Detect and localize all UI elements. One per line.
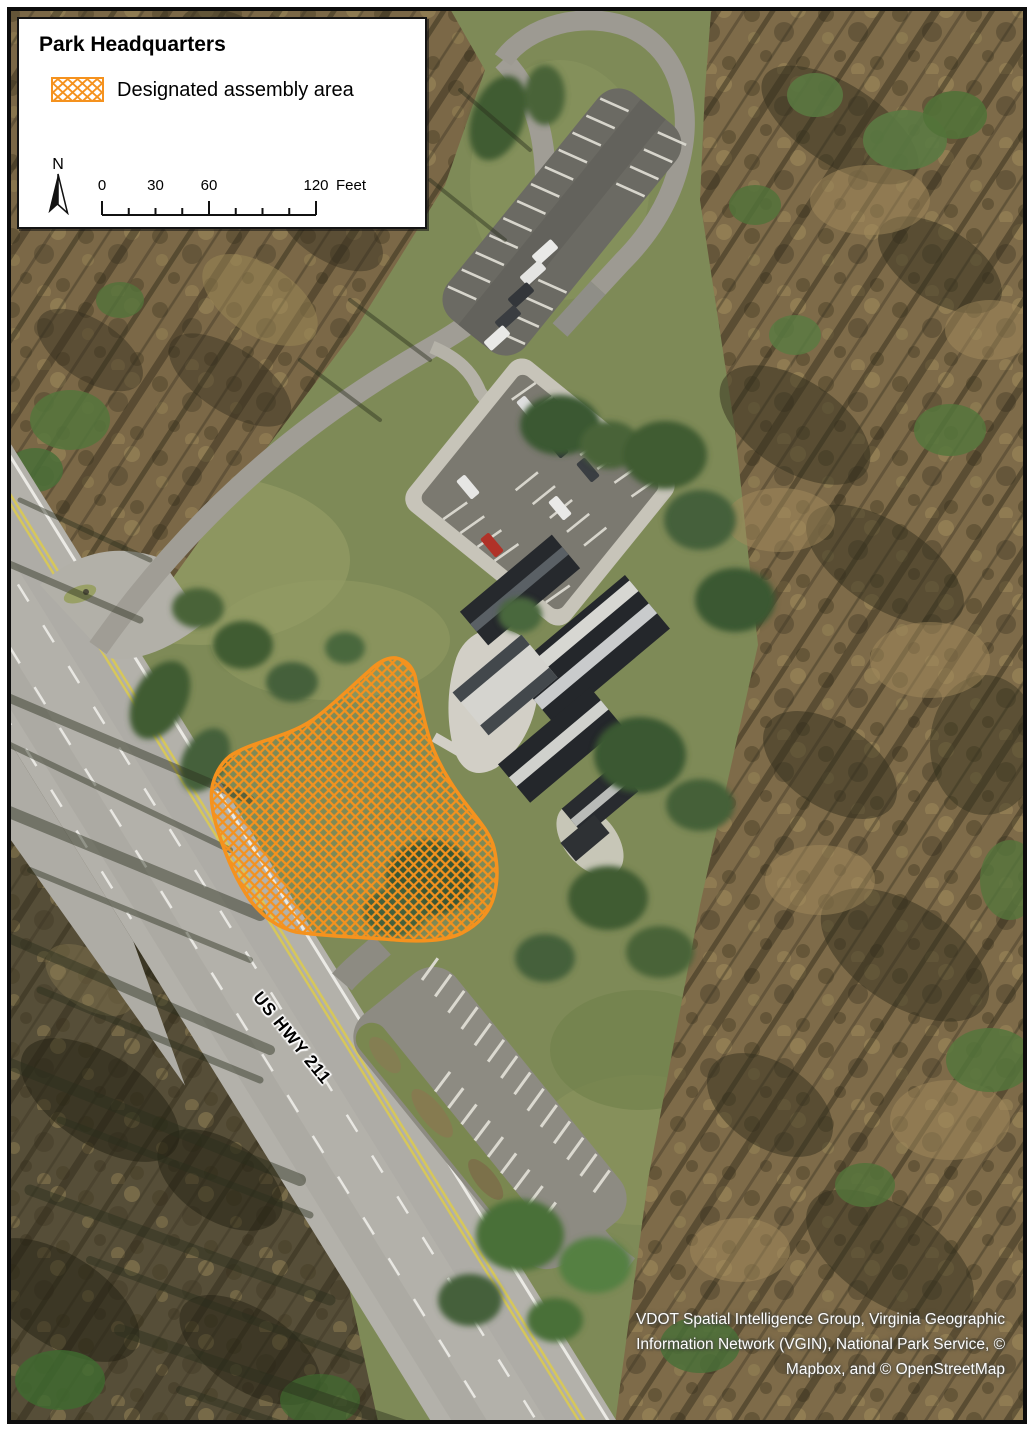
north-arrow-icon <box>45 173 71 215</box>
assembly-area-swatch <box>51 77 104 102</box>
map-attribution: VDOT Spatial Intelligence Group, Virgini… <box>535 1307 1005 1382</box>
scale-tick-label: 120 <box>303 177 328 194</box>
legend-panel: Park Headquarters Designated assembly ar… <box>17 17 427 229</box>
scale-unit-label: Feet <box>336 177 366 194</box>
attribution-line: Mapbox, and © OpenStreetMap <box>535 1357 1005 1382</box>
north-label: N <box>41 157 75 173</box>
scale-bar-icon <box>100 199 322 217</box>
map-title: Park Headquarters <box>39 33 226 57</box>
crosshatch-pattern-icon <box>53 79 102 100</box>
legend-item-label: Designated assembly area <box>117 79 354 102</box>
attribution-line: VDOT Spatial Intelligence Group, Virgini… <box>535 1307 1005 1332</box>
attribution-line: Information Network (VGIN), National Par… <box>535 1332 1005 1357</box>
scale-tick-label: 0 <box>98 177 106 194</box>
scale-bar: 0 30 60 120 Feet <box>102 177 412 225</box>
scale-tick-label: 60 <box>201 177 218 194</box>
map-page: US HWY 211 VDOT Spatial Intelligence Gro… <box>0 0 1034 1431</box>
map-frame: US HWY 211 VDOT Spatial Intelligence Gro… <box>7 7 1027 1424</box>
scale-tick-label: 30 <box>147 177 164 194</box>
north-arrow: N <box>41 157 75 220</box>
